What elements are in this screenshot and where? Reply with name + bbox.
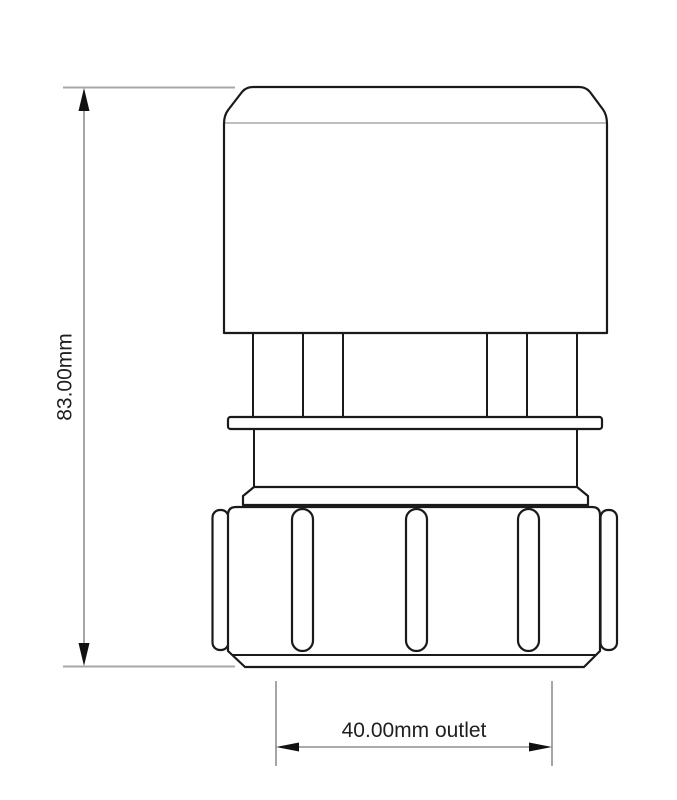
height-dimension: 83.00mm bbox=[54, 88, 236, 667]
nut-side-lobe-right bbox=[601, 510, 618, 650]
nut-side-lobe-left bbox=[213, 510, 229, 650]
collar-outline bbox=[243, 487, 588, 505]
outlet-dimension: 40.00mm outlet bbox=[276, 681, 552, 766]
cap-outline bbox=[224, 87, 607, 333]
collar-ring bbox=[243, 487, 588, 505]
flange-plate bbox=[228, 417, 602, 429]
mounting-flange bbox=[228, 417, 602, 429]
valve-technical-drawing: 83.00mm bbox=[0, 0, 677, 800]
arrow-down-icon bbox=[79, 643, 90, 666]
valve-cap bbox=[224, 87, 607, 333]
valve-legs bbox=[253, 333, 577, 417]
nut-grip-slot bbox=[406, 509, 427, 651]
arrow-left-icon bbox=[276, 743, 299, 752]
drawing-canvas: 83.00mm bbox=[0, 0, 677, 800]
nut-grip-slot bbox=[292, 509, 313, 651]
height-dimension-label: 83.00mm bbox=[54, 333, 77, 421]
arrow-right-icon bbox=[529, 743, 552, 752]
compression-nut bbox=[213, 507, 618, 667]
outlet-dimension-label: 40.00mm outlet bbox=[342, 719, 487, 742]
arrow-up-icon bbox=[79, 88, 90, 111]
valve-neck bbox=[254, 429, 577, 487]
nut-grip-slot bbox=[518, 509, 539, 651]
